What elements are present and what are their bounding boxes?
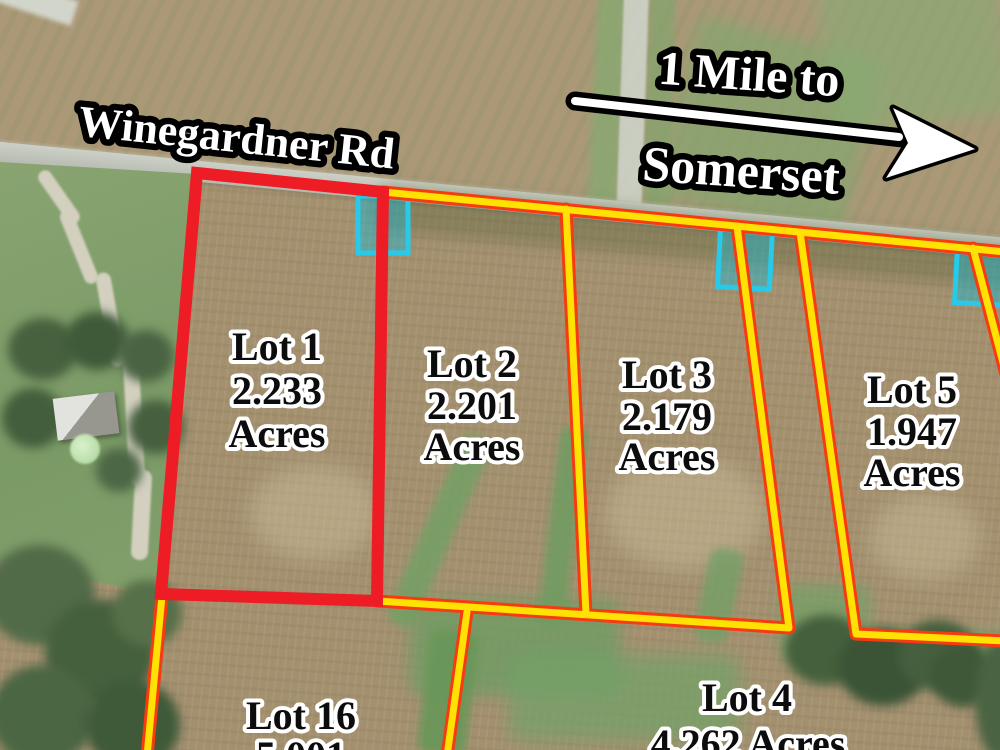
lot-1-label: Lot 1 2.233 Acres bbox=[229, 324, 326, 456]
lot-3-acreage: 2.179 bbox=[622, 394, 712, 439]
lot-5-label: Lot 5 1.947 Acres bbox=[864, 367, 961, 495]
lot-3-label: Lot 3 2.179 Acres bbox=[619, 352, 716, 479]
lot-1-unit: Acres bbox=[229, 411, 326, 456]
direction-label-line2: Somerset bbox=[641, 135, 842, 205]
lot-16-label: Lot 16 5.001 bbox=[246, 693, 356, 750]
lot-16-acreage: 5.001 bbox=[256, 733, 346, 750]
utility-markers bbox=[358, 196, 1000, 305]
lot-16-name: Lot 16 bbox=[246, 693, 356, 738]
lot-5-name: Lot 5 bbox=[867, 367, 957, 412]
lot-4-acreage: 4.262 Acres bbox=[651, 721, 846, 750]
lot-5-unit: Acres bbox=[864, 450, 961, 495]
lot-5-acreage: 1.947 bbox=[867, 409, 957, 454]
road-label: Winegardner Rd bbox=[76, 97, 397, 179]
map-overlay: Winegardner Rd 1 Mile to Somerset Lot 1 … bbox=[0, 0, 1000, 750]
lot-2-unit: Acres bbox=[424, 424, 521, 469]
lot-3-name: Lot 3 bbox=[622, 352, 712, 397]
lot-2-acreage: 2.201 bbox=[427, 383, 517, 428]
lot-1-name: Lot 1 bbox=[232, 324, 322, 369]
lot-4-name: Lot 4 bbox=[702, 675, 792, 720]
lot-1-acreage: 2.233 bbox=[232, 368, 322, 413]
aerial-lot-map: Winegardner Rd 1 Mile to Somerset Lot 1 … bbox=[0, 0, 1000, 750]
lot-3-unit: Acres bbox=[619, 434, 716, 479]
lot-2-label: Lot 2 2.201 Acres bbox=[424, 341, 521, 469]
direction-label-line1: 1 Mile to bbox=[657, 42, 842, 108]
lot-2-name: Lot 2 bbox=[427, 341, 517, 386]
lot-4-label: Lot 4 4.262 Acres bbox=[651, 675, 846, 750]
